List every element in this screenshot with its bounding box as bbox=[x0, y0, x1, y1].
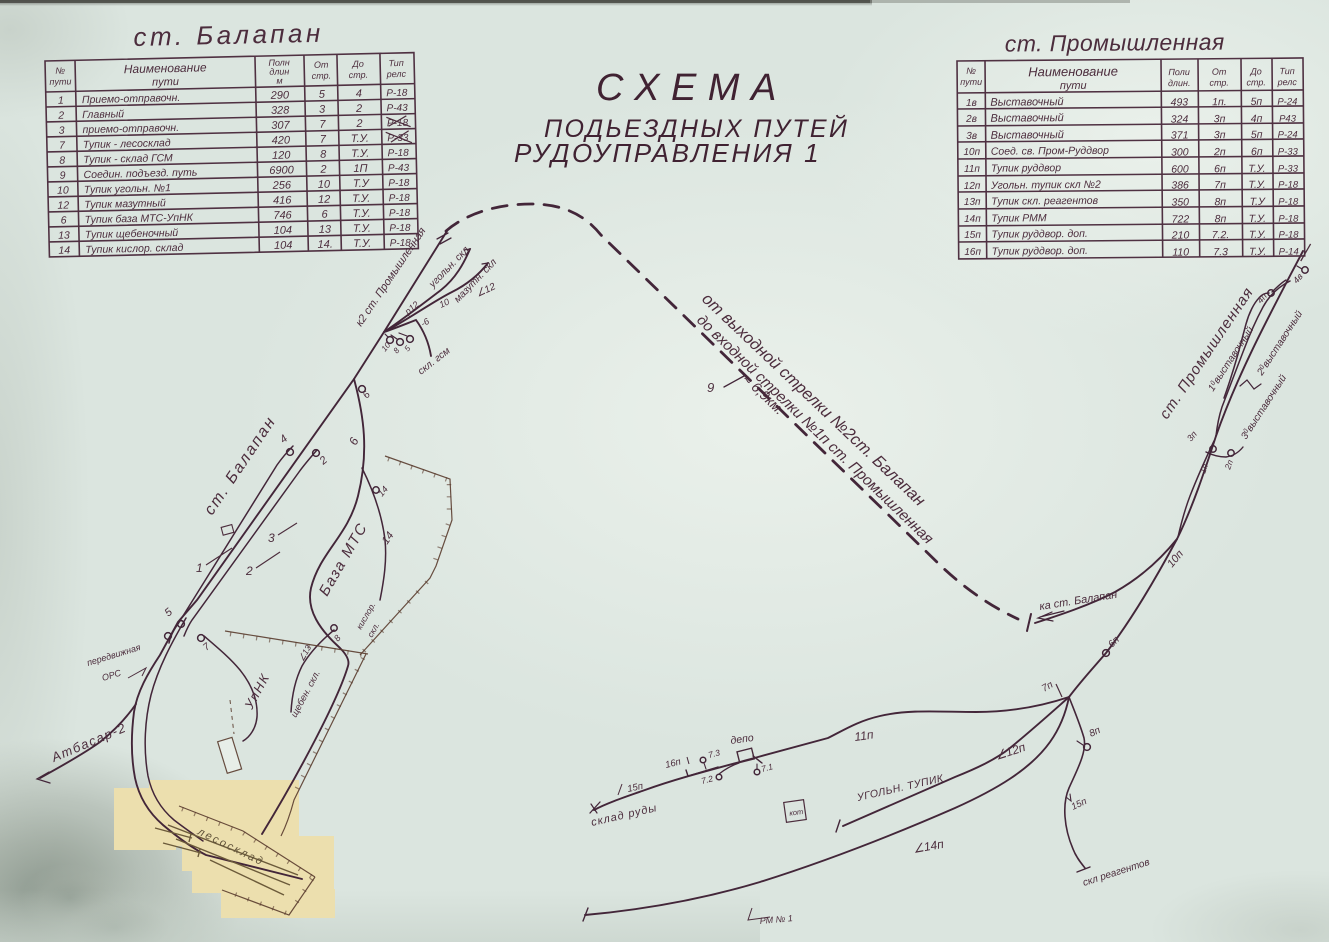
svg-text:386: 386 bbox=[1171, 179, 1189, 191]
svg-text:Тупик скл. реагентов: Тупик скл. реагентов bbox=[991, 195, 1098, 208]
svg-text:№: № bbox=[966, 66, 976, 76]
svg-text:2: 2 bbox=[355, 103, 362, 115]
svg-text:Р-18: Р-18 bbox=[388, 148, 410, 159]
svg-text:Р-18: Р-18 bbox=[1278, 180, 1299, 191]
svg-text:7.2.: 7.2. bbox=[1212, 229, 1230, 241]
svg-text:Тупик база МТС-УпНК: Тупик база МТС-УпНК bbox=[84, 212, 193, 226]
svg-text:12п: 12п bbox=[964, 181, 981, 192]
svg-text:Т.У.: Т.У. bbox=[1249, 229, 1266, 241]
svg-text:722: 722 bbox=[1172, 213, 1190, 225]
svg-text:11п: 11п bbox=[964, 164, 980, 175]
svg-text:Тип: Тип bbox=[1279, 66, 1294, 76]
svg-text:Р-18: Р-18 bbox=[389, 193, 411, 204]
svg-text:Тупик руддвор: Тупик руддвор bbox=[991, 162, 1061, 175]
svg-text:6: 6 bbox=[61, 215, 67, 227]
svg-text:Поли: Поли bbox=[1168, 67, 1190, 77]
svg-text:2: 2 bbox=[355, 118, 362, 130]
svg-text:стр.: стр. bbox=[1209, 78, 1228, 88]
svg-text:Наименование: Наименование bbox=[124, 60, 207, 76]
svg-text:420: 420 bbox=[272, 134, 292, 146]
svg-text:10п: 10п bbox=[963, 147, 980, 158]
svg-text:600: 600 bbox=[1171, 163, 1189, 175]
svg-text:Р-18: Р-18 bbox=[387, 118, 409, 129]
svg-text:кот: кот bbox=[789, 807, 804, 818]
svg-text:Р-18: Р-18 bbox=[389, 223, 411, 234]
svg-text:Т.У.: Т.У. bbox=[351, 133, 369, 145]
svg-text:Р-18: Р-18 bbox=[388, 178, 410, 189]
svg-text:5п: 5п bbox=[1251, 129, 1263, 141]
svg-text:приемо-отправочн.: приемо-отправочн. bbox=[82, 122, 179, 136]
svg-text:416: 416 bbox=[273, 194, 293, 206]
svg-text:Тупик - склад ГСМ: Тупик - склад ГСМ bbox=[83, 152, 173, 166]
svg-text:Т.У: Т.У bbox=[353, 178, 370, 190]
svg-text:До: До bbox=[1249, 66, 1261, 76]
svg-text:8: 8 bbox=[59, 155, 65, 167]
svg-text:Тупик кислор. склад: Тупик кислор. склад bbox=[85, 242, 184, 256]
svg-text:Тупик угольн. №1: Тупик угольн. №1 bbox=[84, 182, 171, 196]
svg-text:№: № bbox=[55, 66, 65, 76]
svg-text:релс: релс bbox=[386, 69, 407, 79]
svg-text:1: 1 bbox=[196, 561, 203, 575]
svg-text:13п: 13п bbox=[964, 197, 981, 208]
svg-text:Тупик мазутный: Тупик мазутный bbox=[84, 197, 166, 211]
svg-text:пути: пути bbox=[152, 76, 179, 89]
svg-text:4п: 4п bbox=[1251, 113, 1263, 125]
svg-text:Р-18: Р-18 bbox=[1278, 197, 1299, 208]
svg-text:2: 2 bbox=[319, 164, 326, 176]
svg-text:3п: 3п bbox=[1214, 113, 1226, 125]
svg-text:15п: 15п bbox=[964, 230, 981, 241]
svg-text:Р-18: Р-18 bbox=[1278, 230, 1299, 241]
svg-text:Т.У.: Т.У. bbox=[351, 148, 369, 160]
svg-text:СХЕМА: СХЕМА bbox=[596, 67, 788, 109]
svg-text:Р-24: Р-24 bbox=[1277, 97, 1297, 108]
svg-text:м: м bbox=[276, 76, 282, 86]
svg-text:6п: 6п bbox=[1251, 146, 1263, 158]
svg-text:Р-14: Р-14 bbox=[1279, 247, 1299, 258]
svg-text:Р-18: Р-18 bbox=[386, 88, 408, 99]
svg-text:14: 14 bbox=[58, 244, 70, 256]
svg-text:Т.У.: Т.У. bbox=[1249, 246, 1266, 258]
svg-text:324: 324 bbox=[1171, 113, 1189, 125]
svg-text:Наименование: Наименование bbox=[1028, 64, 1118, 80]
svg-text:1П: 1П bbox=[353, 163, 367, 175]
svg-text:3в: 3в bbox=[966, 131, 977, 142]
svg-text:Р-18: Р-18 bbox=[1278, 214, 1299, 225]
svg-text:3: 3 bbox=[59, 125, 65, 137]
svg-text:11п: 11п bbox=[853, 727, 874, 744]
svg-text:Тупик - лесосклад: Тупик - лесосклад bbox=[83, 137, 171, 151]
svg-text:Р-33: Р-33 bbox=[1278, 164, 1299, 175]
svg-text:10: 10 bbox=[57, 184, 69, 196]
svg-text:Р43: Р43 bbox=[1279, 114, 1297, 125]
svg-text:4: 4 bbox=[356, 88, 362, 100]
svg-text:РУДОУПРАВЛЕНИЯ 1: РУДОУПРАВЛЕНИЯ 1 bbox=[514, 138, 821, 168]
svg-text:5п: 5п bbox=[1251, 96, 1263, 108]
svg-text:От: От bbox=[314, 60, 329, 70]
svg-text:пути: пути bbox=[1060, 80, 1087, 92]
svg-text:16п: 16п bbox=[964, 247, 981, 258]
svg-text:стр.: стр. bbox=[312, 71, 332, 81]
svg-text:Т.У.: Т.У. bbox=[353, 238, 371, 250]
svg-text:104: 104 bbox=[274, 239, 293, 251]
svg-text:120: 120 bbox=[272, 149, 292, 161]
svg-text:350: 350 bbox=[1171, 196, 1189, 208]
svg-text:Главный: Главный bbox=[82, 108, 124, 121]
svg-text:14п: 14п bbox=[964, 214, 981, 225]
svg-text:Т.У: Т.У bbox=[1250, 196, 1267, 208]
svg-text:13: 13 bbox=[58, 229, 70, 241]
svg-text:746: 746 bbox=[273, 209, 293, 221]
svg-text:12: 12 bbox=[57, 199, 69, 211]
svg-text:210: 210 bbox=[1171, 229, 1190, 241]
svg-text:ст. Промышленная: ст. Промышленная bbox=[1005, 29, 1225, 57]
svg-text:10: 10 bbox=[318, 179, 331, 191]
svg-text:Р-18: Р-18 bbox=[389, 208, 411, 219]
svg-text:2: 2 bbox=[57, 110, 64, 122]
svg-text:Р-33: Р-33 bbox=[1278, 147, 1299, 158]
svg-text:13: 13 bbox=[319, 224, 332, 236]
svg-text:307: 307 bbox=[271, 119, 291, 131]
svg-text:Тип: Тип bbox=[388, 58, 403, 68]
svg-text:До: До bbox=[351, 59, 364, 69]
svg-text:256: 256 bbox=[272, 179, 293, 191]
svg-text:6900: 6900 bbox=[269, 164, 295, 177]
svg-text:290: 290 bbox=[270, 89, 291, 101]
svg-text:Тупик щебеночный: Тупик щебеночный bbox=[85, 227, 179, 241]
svg-text:12: 12 bbox=[318, 194, 331, 206]
svg-text:1п.: 1п. bbox=[1212, 96, 1227, 108]
svg-text:104: 104 bbox=[274, 224, 293, 236]
svg-text:От: От bbox=[1212, 67, 1227, 77]
svg-text:Т.У.: Т.У. bbox=[353, 223, 371, 235]
svg-text:8п: 8п bbox=[1215, 213, 1227, 225]
svg-text:2п: 2п bbox=[1213, 146, 1226, 158]
svg-text:длин.: длин. bbox=[1168, 78, 1191, 88]
svg-text:Тупик РММ: Тупик РММ bbox=[991, 212, 1047, 224]
svg-text:Т.У.: Т.У. bbox=[352, 208, 370, 220]
svg-text:пути: пути bbox=[960, 77, 982, 87]
svg-text:Соед. св. Пром-Руддвор: Соед. св. Пром-Руддвор bbox=[991, 145, 1109, 158]
svg-text:Приемо-отправочн.: Приемо-отправочн. bbox=[82, 92, 181, 106]
svg-text:Выставочный: Выставочный bbox=[990, 112, 1063, 125]
svg-text:9: 9 bbox=[60, 170, 66, 182]
svg-text:Р-24: Р-24 bbox=[1278, 130, 1298, 141]
svg-text:Т.У.: Т.У. bbox=[1248, 179, 1265, 191]
svg-text:493: 493 bbox=[1171, 96, 1189, 108]
svg-text:Выставочный: Выставочный bbox=[990, 96, 1063, 109]
svg-text:2в: 2в bbox=[965, 114, 977, 125]
svg-text:3п: 3п bbox=[1214, 129, 1226, 141]
svg-text:ст. Балапан: ст. Балапан bbox=[133, 18, 324, 52]
svg-text:Т.У.: Т.У. bbox=[1248, 163, 1265, 175]
svg-text:1: 1 bbox=[58, 95, 64, 107]
svg-text:300: 300 bbox=[1171, 146, 1189, 158]
svg-text:Тупик руддвор. доп.: Тупик руддвор. доп. bbox=[991, 228, 1087, 241]
svg-text:6п: 6п bbox=[1214, 163, 1226, 175]
svg-text:Р-33: Р-33 bbox=[387, 133, 409, 144]
svg-text:Выставочный: Выставочный bbox=[991, 129, 1064, 142]
svg-text:371: 371 bbox=[1171, 129, 1189, 141]
svg-text:14.: 14. bbox=[317, 239, 333, 251]
svg-text:9: 9 bbox=[707, 380, 714, 395]
svg-text:Т.У.: Т.У. bbox=[352, 193, 370, 205]
svg-text:Р-43: Р-43 bbox=[388, 163, 410, 174]
svg-text:328: 328 bbox=[271, 104, 291, 116]
svg-text:7.3: 7.3 bbox=[1213, 246, 1228, 258]
svg-text:Р-18: Р-18 bbox=[390, 238, 412, 249]
svg-text:2: 2 bbox=[245, 564, 253, 578]
svg-text:пути: пути bbox=[49, 76, 71, 86]
svg-text:1в: 1в bbox=[966, 98, 977, 109]
svg-text:стр.: стр. bbox=[349, 70, 369, 80]
svg-text:Угольн. тупик скл №2: Угольн. тупик скл №2 bbox=[990, 179, 1101, 192]
svg-text:110: 110 bbox=[1172, 246, 1189, 258]
svg-text:3: 3 bbox=[268, 531, 275, 545]
svg-text:Тупик руддвор. доп.: Тупик руддвор. доп. bbox=[992, 245, 1088, 258]
svg-text:релс: релс bbox=[1277, 77, 1298, 87]
svg-text:Р-43: Р-43 bbox=[386, 103, 408, 114]
svg-text:7п: 7п bbox=[1214, 179, 1226, 191]
svg-text:8п: 8п bbox=[1214, 196, 1226, 208]
svg-text:Т.У.: Т.У. bbox=[1249, 213, 1266, 225]
svg-text:стр.: стр. bbox=[1246, 77, 1265, 87]
